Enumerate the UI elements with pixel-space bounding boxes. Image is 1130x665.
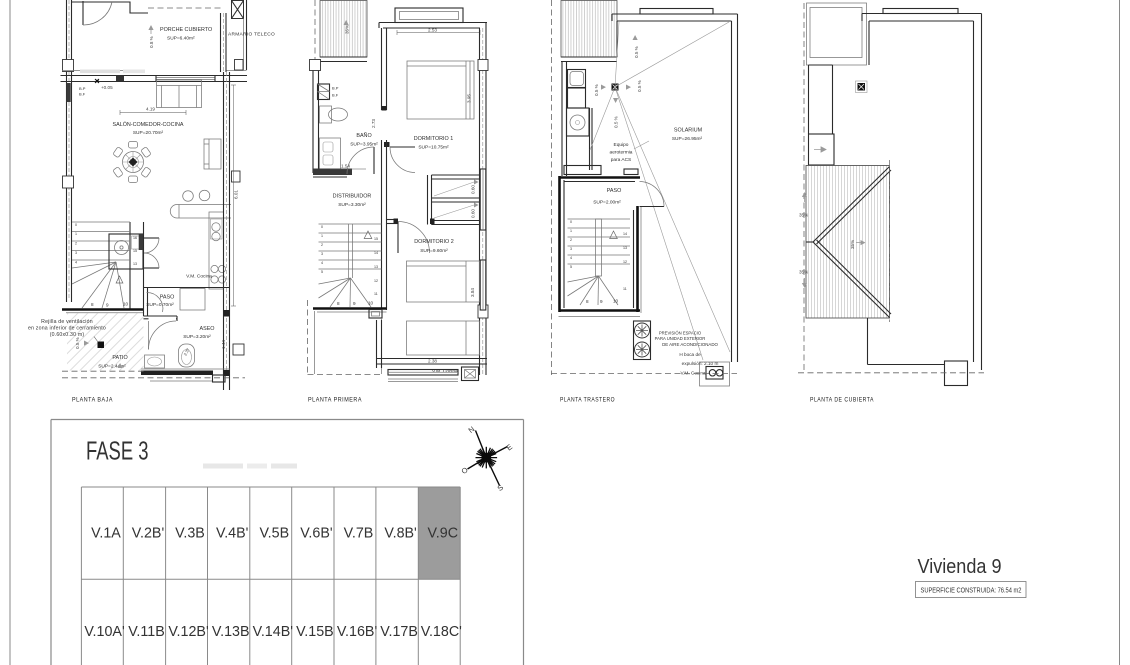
- svg-text:1: 1: [321, 234, 323, 238]
- svg-text:0.5 %: 0.5 %: [614, 116, 619, 128]
- svg-text:SUP=3.30m²: SUP=3.30m²: [338, 202, 366, 208]
- svg-text:B.F: B.F: [79, 92, 86, 97]
- svg-text:V.1A: V.1A: [91, 526, 121, 542]
- svg-text:SUP=2.44m²: SUP=2.44m²: [98, 364, 126, 370]
- svg-text:PLANTA TRASTERO: PLANTA TRASTERO: [560, 397, 615, 404]
- svg-text:15: 15: [374, 237, 378, 241]
- svg-text:SUP=3.20m²: SUP=3.20m²: [183, 334, 211, 340]
- svg-text:13: 13: [623, 246, 627, 250]
- svg-text:0.5 %: 0.5 %: [594, 84, 599, 96]
- svg-text:0: 0: [321, 225, 323, 229]
- svg-text:+0.05: +0.05: [101, 85, 113, 90]
- svg-text:B.F: B.F: [332, 93, 339, 98]
- svg-text:B.P: B.P: [332, 86, 339, 91]
- svg-text:PLANTA DE CUBIERTA: PLANTA DE CUBIERTA: [810, 397, 874, 404]
- svg-text:11: 11: [374, 292, 378, 296]
- svg-text:1: 1: [570, 229, 572, 233]
- svg-text:BAÑO: BAÑO: [356, 132, 371, 139]
- svg-text:PATIO: PATIO: [112, 355, 127, 361]
- svg-text:B.P: B.P: [79, 86, 86, 91]
- svg-text:9: 9: [353, 301, 356, 306]
- svg-text:35%: 35%: [799, 270, 808, 275]
- svg-text:0: 0: [570, 220, 572, 224]
- svg-text:V.4B': V.4B': [216, 526, 249, 542]
- svg-text:para ACS: para ACS: [611, 157, 632, 163]
- svg-text:12: 12: [623, 260, 627, 264]
- svg-text:8: 8: [337, 301, 340, 306]
- svg-text:Vivienda 9: Vivienda 9: [918, 555, 1002, 578]
- svg-text:SUP=10.75m²: SUP=10.75m²: [418, 145, 449, 151]
- svg-text:V.M. Cocina: V.M. Cocina: [186, 274, 212, 280]
- svg-text:PARA UNIDAD EXTERIOR: PARA UNIDAD EXTERIOR: [655, 336, 706, 341]
- svg-text:2.53: 2.53: [428, 28, 437, 33]
- svg-text:DORMITORIO 1: DORMITORIO 1: [414, 136, 453, 142]
- svg-text:PORCHE CUBIERTO: PORCHE CUBIERTO: [160, 27, 212, 33]
- svg-text:V.17B: V.17B: [380, 624, 418, 640]
- svg-text:SALÓN-COMEDOR-COCINA: SALÓN-COMEDOR-COCINA: [113, 121, 184, 128]
- svg-text:PLANTA BAJA: PLANTA BAJA: [72, 397, 113, 404]
- svg-text:0.60: 0.60: [471, 209, 476, 218]
- svg-text:DE AIRE ACONDICIONADO: DE AIRE ACONDICIONADO: [662, 342, 718, 347]
- svg-text:2: 2: [570, 238, 572, 242]
- svg-text:V.11B: V.11B: [128, 624, 165, 640]
- svg-text:Rejilla de ventilación: Rejilla de ventilación: [41, 319, 93, 325]
- svg-text:DORMITORIO 2: DORMITORIO 2: [414, 239, 453, 245]
- svg-text:V.7B: V.7B: [344, 526, 374, 542]
- svg-text:SUP=0.70m²: SUP=0.70m²: [146, 302, 174, 308]
- svg-text:V.6B': V.6B': [300, 526, 333, 542]
- svg-text:1.54: 1.54: [341, 164, 350, 169]
- svg-text:14: 14: [623, 232, 627, 236]
- svg-text:4.19: 4.19: [146, 107, 155, 112]
- svg-text:PREVISIÓN ESPACIO: PREVISIÓN ESPACIO: [659, 331, 702, 336]
- svg-text:1.44: 1.44: [221, 340, 226, 349]
- svg-text:35%: 35%: [345, 25, 350, 34]
- svg-text:10: 10: [123, 302, 129, 307]
- svg-text:SOLARIUM: SOLARIUM: [674, 128, 703, 134]
- svg-text:9: 9: [106, 303, 109, 308]
- svg-text:8: 8: [586, 299, 589, 304]
- svg-text:en zona inferior de cerramient: en zona inferior de cerramiento: [28, 326, 106, 332]
- svg-text:0.60: 0.60: [471, 185, 476, 194]
- svg-text:V.5B: V.5B: [259, 526, 289, 542]
- svg-text:13: 13: [374, 265, 378, 269]
- svg-text:3: 3: [321, 252, 323, 256]
- svg-text:3.95: 3.95: [467, 94, 472, 103]
- svg-text:35%: 35%: [799, 213, 808, 218]
- svg-text:12: 12: [374, 279, 378, 283]
- svg-text:aerotermia: aerotermia: [610, 150, 633, 156]
- svg-text:6.01: 6.01: [234, 190, 239, 199]
- svg-text:SUPERFICIE CONSTRUIDA: 76.54 m: SUPERFICIE CONSTRUIDA: 76.54 m2: [921, 586, 1022, 595]
- svg-text:V.8B': V.8B': [384, 526, 417, 542]
- svg-text:Equipo: Equipo: [614, 142, 629, 148]
- svg-text:0: 0: [75, 223, 77, 227]
- svg-text:SUP=2.00m²: SUP=2.00m²: [593, 200, 621, 206]
- svg-text:15: 15: [133, 249, 137, 253]
- svg-text:SUP=20.70m²: SUP=20.70m²: [133, 130, 164, 136]
- svg-text:0.5 %: 0.5 %: [75, 337, 80, 349]
- svg-text:9: 9: [600, 299, 603, 304]
- svg-text:V.16B': V.16B': [337, 624, 378, 640]
- svg-text:SUP=3.95m²: SUP=3.95m²: [350, 142, 378, 148]
- svg-text:2.73: 2.73: [371, 119, 376, 128]
- svg-text:V.2B': V.2B': [132, 526, 165, 542]
- svg-text:H boca de: H boca de: [679, 352, 701, 357]
- svg-text:DISTRIBUIDOR: DISTRIBUIDOR: [333, 194, 372, 200]
- svg-text:4: 4: [321, 261, 323, 265]
- svg-text:V.9C: V.9C: [428, 526, 458, 542]
- svg-text:0.8 %: 0.8 %: [149, 36, 154, 48]
- svg-text:V.12B': V.12B': [168, 624, 209, 640]
- svg-text:10: 10: [613, 299, 619, 304]
- svg-text:FASE 3: FASE 3: [86, 436, 149, 466]
- svg-text:ASEO: ASEO: [200, 326, 215, 332]
- svg-text:V.18C': V.18C': [421, 624, 462, 640]
- svg-text:SUP=9.60m²: SUP=9.60m²: [420, 248, 448, 254]
- svg-text:5: 5: [570, 265, 572, 269]
- svg-text:16: 16: [133, 236, 137, 240]
- svg-text:0.5 %: 0.5 %: [634, 46, 639, 58]
- svg-text:4: 4: [570, 256, 572, 260]
- svg-text:2.38: 2.38: [428, 359, 437, 364]
- svg-text:ARMARIO TELECO: ARMARIO TELECO: [228, 32, 275, 38]
- svg-text:35%: 35%: [850, 240, 855, 249]
- svg-text:(0.60x0.30 m): (0.60x0.30 m): [50, 332, 85, 338]
- svg-text:V.15B: V.15B: [296, 624, 334, 640]
- svg-text:V.13B: V.13B: [212, 624, 250, 640]
- svg-text:4: 4: [75, 261, 77, 265]
- svg-text:V.M. Cocina: V.M. Cocina: [680, 371, 705, 376]
- svg-text:2: 2: [321, 243, 323, 247]
- svg-text:5: 5: [321, 270, 323, 274]
- svg-text:PASO: PASO: [607, 188, 622, 194]
- svg-text:8: 8: [91, 302, 94, 307]
- svg-text:10: 10: [368, 301, 374, 306]
- svg-text:V.10A': V.10A': [84, 624, 125, 640]
- svg-text:0.5 %: 0.5 %: [637, 80, 642, 92]
- svg-text:3.84: 3.84: [470, 288, 475, 297]
- svg-text:14: 14: [374, 251, 378, 255]
- svg-text:11: 11: [623, 287, 627, 291]
- svg-text:2: 2: [75, 242, 77, 246]
- svg-text:13: 13: [133, 262, 137, 266]
- svg-text:1: 1: [75, 232, 77, 236]
- svg-text:SUP=6.40m²: SUP=6.40m²: [167, 36, 195, 42]
- svg-text:PLANTA PRIMERA: PLANTA PRIMERA: [308, 397, 362, 404]
- svg-text:3: 3: [75, 251, 77, 255]
- svg-text:V.14B': V.14B': [253, 624, 294, 640]
- svg-text:3: 3: [570, 247, 572, 251]
- svg-text:V.3B: V.3B: [175, 526, 205, 542]
- svg-text:SUP=26.95m²: SUP=26.95m²: [672, 136, 703, 142]
- svg-text:PASO: PASO: [160, 295, 175, 301]
